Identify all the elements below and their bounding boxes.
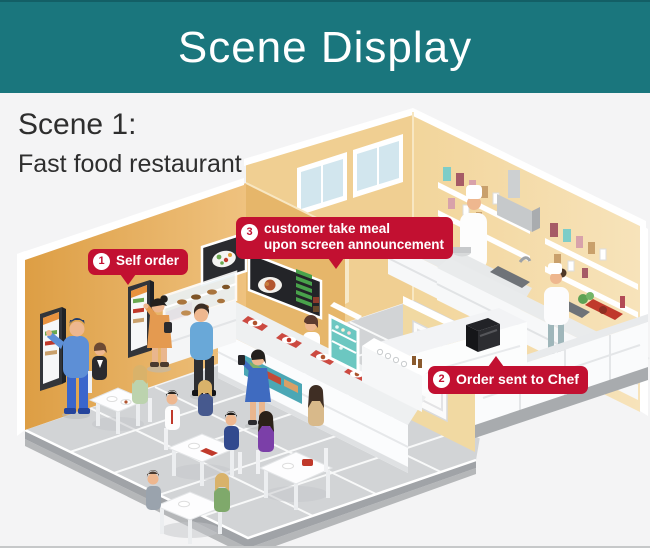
badge-pointer xyxy=(120,274,136,285)
diner-green-back-person xyxy=(214,473,230,512)
badge-pointer xyxy=(488,356,504,367)
badge-order-sent: 2 Order sent to Chef xyxy=(428,366,588,394)
badge-label: Order sent to Chef xyxy=(456,371,579,388)
scene-subtitle: Fast food restaurant xyxy=(18,150,242,179)
scene-display-page: Scene Display xyxy=(0,0,650,548)
self-order-kiosk-1 xyxy=(40,307,66,391)
badge-take-meal: 3 customer take meal upon screen announc… xyxy=(236,217,453,259)
badge-number: 2 xyxy=(433,371,450,388)
badge-pointer xyxy=(328,258,344,269)
badge-label: Self order xyxy=(116,253,179,269)
badge-self-order: 1 Self order xyxy=(88,249,188,275)
badge-label: customer take meal upon screen announcem… xyxy=(264,221,444,254)
scene-title: Scene 1: xyxy=(18,108,136,142)
badge-number: 3 xyxy=(241,224,258,241)
badge-number: 1 xyxy=(93,253,110,270)
diner-blonde-woman xyxy=(198,380,213,416)
